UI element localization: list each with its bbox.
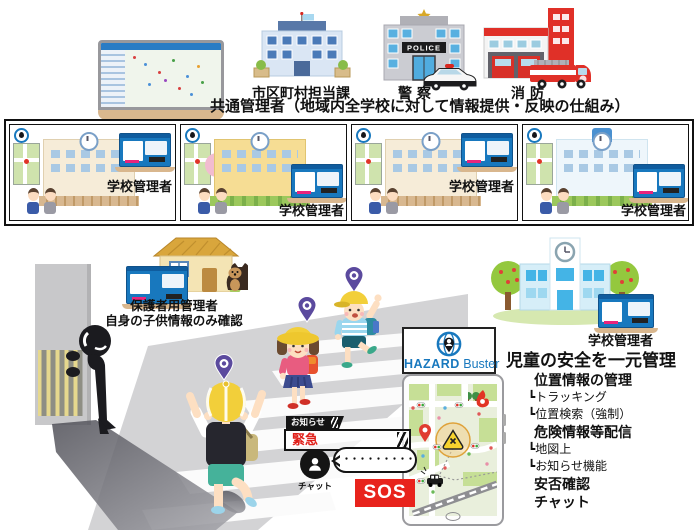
school-admin-label: 学校管理者 [621,200,686,219]
student-figure [197,188,211,215]
map-screen [409,384,497,516]
clock-icon [422,132,441,151]
common-admin-caption: 共通管理者（地域内全学校に対して情報提供・反映の仕組み） [210,95,630,116]
emergency-label: 緊急 [286,431,409,448]
laptop-screen [98,40,224,110]
hazard-logo-icon [185,128,200,143]
student-figure [556,188,570,215]
logo-text-regular: Buster [463,357,499,371]
hazard-logo-icon [14,128,29,143]
suspect-silhouette [66,325,116,434]
tablet-device [402,374,504,526]
boy-figure [322,288,386,376]
tablet-side-button [503,432,506,444]
fence [38,350,82,416]
police-car-icon [420,63,480,91]
parent-admin-line1: 保護者用管理者 [86,299,262,314]
map-dots [133,56,136,59]
school-panel-3: 学校管理者 [351,124,518,221]
person-icon [306,455,324,473]
student-figure [43,188,57,215]
hazard-logo-icon [356,128,371,143]
school-admin-label: 学校管理者 [107,176,172,195]
right-school-laptop [598,294,654,333]
fire-truck-icon [528,56,592,92]
school-admin-laptop [291,164,343,203]
feature-title: 児童の安全を一元管理 [506,346,700,371]
school-panel-2: 学校管理者 [180,124,347,221]
school-panel-1: 学校管理者 [9,124,176,221]
student-figure [385,188,399,215]
feature-item: 危険情報等配信 [534,423,700,441]
mini-map [13,143,40,185]
tablet-side-button [503,414,506,426]
hazard-buster-logo: HAZARD Buster [402,327,496,374]
wall [35,264,91,425]
school-admin-label: 学校管理者 [279,200,344,219]
feature-item: ┗位置検索（強制） [528,406,700,423]
chat-label: チャット [292,480,338,492]
girl-figure [268,322,328,414]
clock-icon [80,132,99,151]
feature-item: ┗お知らせ機能 [528,458,700,475]
notice-tag: お知らせ [286,416,344,429]
logo-text-bold: HAZARD [404,357,460,371]
feature-item: ┗トラッキング [528,389,700,406]
feature-item: チャット [534,493,700,511]
hazard-logo-icon [527,128,542,143]
location-pin-icon [214,354,234,381]
student-figure [368,188,382,215]
parent-admin-line2: 自身の子供情報のみ確認 [86,314,262,329]
school-panels-row: 学校管理者 学校管理者 [4,119,694,226]
clock-icon [251,132,270,151]
globe-pin-icon [435,330,463,358]
chat-bubble: ・・・・・・・・・・・・・・ [333,447,417,473]
dog-icon [222,260,248,292]
mini-map [526,143,553,185]
parent-admin-text: 保護者用管理者 自身の子供情報のみ確認 [86,299,262,329]
school-admin-laptop [119,133,171,172]
municipal-building-icon [250,12,354,82]
student-figure [26,188,40,215]
infographic-stage: 市区町村担当課 POLICE 警察 [0,0,700,530]
feature-item: ┗地図上 [528,441,700,458]
hazard-stripes [397,432,408,448]
back-boy-figure [182,378,270,516]
school-admin-label: 学校管理者 [449,176,514,195]
chat-hidden-message: ・・・・・・・・・・・・・・ [335,449,415,470]
school-admin-laptop [633,164,685,203]
feature-item: 安否確認 [534,475,700,493]
feature-item: 位置情報の管理 [534,371,700,389]
tablet-home-button [446,512,461,521]
school-admin-laptop [461,133,513,172]
feature-list: 児童の安全を一元管理 位置情報の管理 ┗トラッキング ┗位置検索（強制） 危険情… [506,346,700,511]
location-pin-icon [297,296,317,323]
clock-icon [593,132,612,151]
student-figure [214,188,228,215]
school-panel-4: 学校管理者 [522,124,689,221]
student-figure [539,188,553,215]
admin-laptop-illustration [98,40,224,120]
mini-map [355,143,382,185]
police-sign-text: POLICE [407,44,441,53]
sos-badge: SOS [355,479,415,507]
